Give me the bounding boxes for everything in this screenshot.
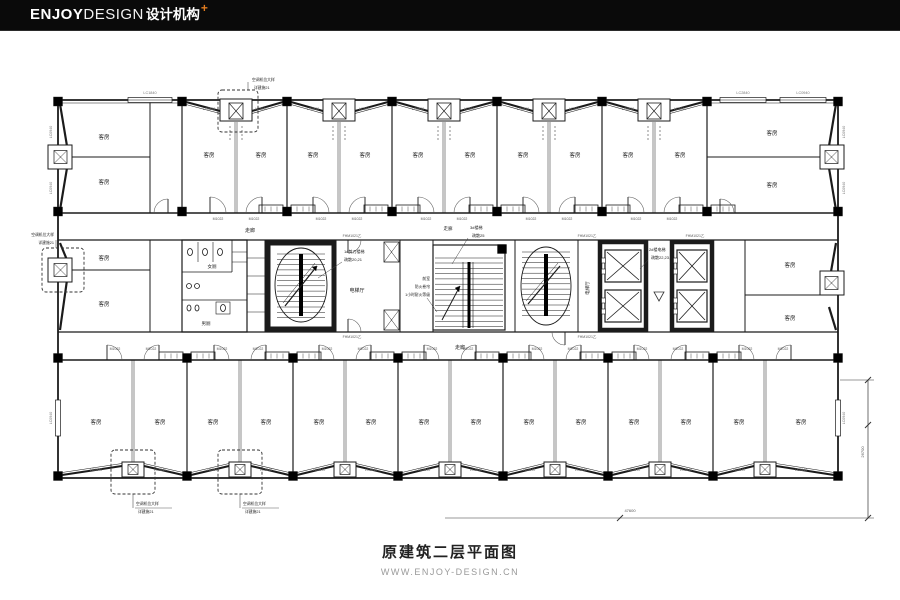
column — [499, 354, 508, 363]
door-code: M1022 — [637, 347, 648, 351]
note: 1小时耐火等级 — [405, 292, 430, 297]
column — [388, 207, 397, 216]
window-code: LC2840 — [365, 468, 378, 472]
stair-arrow — [442, 286, 460, 320]
window-code: LC2840 — [622, 107, 635, 111]
fixture-ellipse — [187, 284, 192, 289]
room-label: 客房 — [313, 418, 325, 426]
window — [56, 400, 61, 436]
elevator-door-jamb — [602, 258, 606, 263]
window-code: LC2840 — [307, 107, 320, 111]
fixture-ellipse — [218, 249, 223, 256]
elevator-door-jamb — [602, 269, 606, 274]
column — [834, 472, 843, 481]
wall-line — [829, 168, 836, 210]
window-code: LC2840 — [470, 468, 483, 472]
fixture-ellipse — [195, 284, 200, 289]
window-code: LC2840 — [523, 468, 536, 472]
room-label: 客房 — [203, 151, 215, 159]
column — [54, 472, 63, 481]
column — [709, 354, 718, 363]
stair-note: 疏散25 — [472, 232, 485, 238]
elevator-door-jamb — [674, 269, 678, 274]
window-code: LC0940 — [842, 412, 846, 425]
window-code: LC2840 — [412, 107, 425, 111]
room-label: 客房 — [795, 418, 807, 426]
door-swing — [720, 199, 734, 213]
column — [54, 207, 63, 216]
elevator-door-jamb — [602, 309, 606, 314]
door-code: M1022 — [146, 347, 157, 351]
door-code: M1022 — [322, 347, 333, 351]
wall-line — [60, 280, 67, 330]
room-label: 女厕 — [208, 263, 217, 270]
room-label: 客房 — [98, 300, 110, 308]
corridor-label: 走廊 — [444, 225, 453, 232]
column — [394, 354, 403, 363]
stair-note: 疏散20,21 — [344, 256, 363, 262]
fire-door-code: FHM1021乙 — [343, 233, 362, 238]
elevator-door-jamb — [674, 298, 678, 303]
door-swing — [664, 197, 680, 213]
door-code: M1022 — [217, 347, 228, 351]
drawing-sheet: ENJOYDESIGN设计机构+ LC1840LC2840LC0940LC094… — [0, 0, 900, 600]
column — [493, 97, 502, 106]
door-code: M1022 — [562, 217, 573, 221]
door-swing — [523, 197, 539, 213]
column — [709, 472, 718, 481]
wall-line — [526, 263, 558, 301]
door-code: M1022 — [110, 347, 121, 351]
door-code: M1022 — [427, 347, 438, 351]
ac-note: 空调机位大样 — [252, 77, 275, 82]
window-code: LC2840 — [628, 468, 641, 472]
window-code: LC2840 — [736, 91, 749, 95]
room-label: 客房 — [569, 151, 581, 159]
ac-niche — [323, 99, 355, 121]
door-code: M1022 — [532, 347, 543, 351]
door-swing — [210, 197, 226, 213]
ac-niche — [820, 145, 844, 169]
ac-note: 空调机位大样 — [31, 232, 54, 237]
room-label: 客房 — [418, 418, 430, 426]
ac-note: 空调机位大样 — [243, 501, 266, 506]
room-label: 电梯厅 — [349, 287, 364, 294]
window-code: LC2840 — [569, 107, 582, 111]
column — [493, 207, 502, 216]
room-label: 客房 — [98, 254, 110, 262]
fire-door-code: FHM1021乙 — [578, 334, 597, 339]
ac-niche — [220, 99, 252, 121]
column — [703, 97, 712, 106]
door-code: M1022 — [673, 347, 684, 351]
room-label: 客房 — [207, 418, 219, 426]
column — [834, 354, 843, 363]
room-label: 客房 — [784, 261, 796, 269]
fire-door-code: FHM1021乙 — [578, 233, 597, 238]
column — [834, 97, 843, 106]
column — [283, 97, 292, 106]
window-code: LC0940 — [49, 126, 53, 139]
room-label: 客房 — [98, 133, 110, 141]
ac-niche — [820, 271, 844, 295]
door-code: M1022 — [742, 347, 753, 351]
fixture-ellipse — [195, 305, 199, 311]
window-code: LC2840 — [733, 468, 746, 472]
elevator-door-jamb — [674, 258, 678, 263]
column — [598, 207, 607, 216]
window-code: LC1840 — [143, 91, 156, 95]
door-code: M1022 — [358, 347, 369, 351]
shaft-strip — [247, 240, 265, 332]
room-label: 客房 — [365, 418, 377, 426]
fire-door-code: FHM1021乙 — [686, 233, 705, 238]
column — [283, 207, 292, 216]
dim-text: 47600 — [624, 508, 636, 513]
stair-note: 1#剪刀楼梯 — [344, 248, 364, 254]
door-code: M1022 — [316, 217, 327, 221]
door-code: M1022 — [667, 217, 678, 221]
wall-line — [60, 243, 67, 260]
room-label: 电梯厅 — [584, 281, 591, 295]
window-code: LC0940 — [842, 182, 846, 195]
room-label: 客房 — [307, 151, 319, 159]
window-code: LC0940 — [842, 126, 846, 139]
column — [178, 97, 187, 106]
door-code: M1022 — [568, 347, 579, 351]
room-label: 客房 — [628, 418, 640, 426]
door-code: M1022 — [778, 347, 789, 351]
elevator-door-jamb — [602, 298, 606, 303]
room-label: 客房 — [784, 314, 796, 322]
window-code: LC2840 — [674, 107, 687, 111]
fixture-ellipse — [221, 305, 226, 312]
window-code: LC2840 — [517, 107, 530, 111]
window-code: LC0940 — [49, 182, 53, 195]
column — [289, 472, 298, 481]
window-code: LC2840 — [680, 468, 693, 472]
door-code: M1022 — [253, 347, 264, 351]
ac-note: 详建施21 — [38, 240, 54, 245]
door-code: M1022 — [631, 217, 642, 221]
stair-note: 3#楼梯 — [470, 224, 482, 230]
room-label: 客房 — [766, 181, 778, 189]
drawing-title: 原建筑二层平面图 — [0, 541, 900, 562]
door-code: M1022 — [457, 217, 468, 221]
column — [598, 97, 607, 106]
floor-plan-canvas: LC1840LC2840LC0940LC0940LC0940LC0940LC09… — [0, 0, 900, 600]
room-label: 客房 — [517, 151, 529, 159]
column — [834, 207, 843, 216]
fire-door-code: FHM1021乙 — [343, 334, 362, 339]
room-label: 客房 — [523, 418, 535, 426]
column — [289, 354, 298, 363]
room-label: 客房 — [680, 418, 692, 426]
wall-line — [829, 307, 836, 330]
note: 防火卷帘 — [415, 284, 430, 289]
column — [604, 472, 613, 481]
column — [499, 472, 508, 481]
corridor-label: 走廊 — [455, 344, 465, 351]
door-swing — [454, 197, 470, 213]
fixture-ellipse — [203, 249, 208, 256]
ac-note: 详建施21 — [138, 509, 154, 514]
room-label: 客房 — [412, 151, 424, 159]
door-code: M1022 — [249, 217, 260, 221]
ac-niche — [48, 145, 72, 169]
column — [388, 97, 397, 106]
wall-line — [60, 104, 67, 146]
room-label: 客房 — [90, 418, 102, 426]
window-code: LC2840 — [255, 107, 268, 111]
window-code: LC2840 — [795, 468, 808, 472]
room-label: 客房 — [470, 418, 482, 426]
column — [604, 354, 613, 363]
column — [183, 354, 192, 363]
column — [703, 207, 712, 216]
wall-line — [829, 104, 836, 146]
arrow-head — [312, 266, 317, 271]
elevator-door-jamb — [674, 309, 678, 314]
level-marker — [654, 292, 664, 301]
door-code: M1022 — [421, 217, 432, 221]
ac-niche — [48, 258, 72, 282]
stair-divider — [468, 262, 471, 328]
column — [178, 207, 187, 216]
door-swing — [349, 197, 365, 213]
door-code: M1022 — [352, 217, 363, 221]
window-code: LC0940 — [796, 91, 809, 95]
ac-niche — [638, 99, 670, 121]
plan-shape — [216, 302, 230, 314]
note: 前室 — [422, 276, 430, 281]
elevator-bank — [672, 242, 712, 330]
window-code: LC2840 — [90, 468, 103, 472]
corridor-label: 走廊 — [245, 227, 255, 234]
window-code: LC2840 — [203, 107, 216, 111]
room-label: 客房 — [154, 418, 166, 426]
room-label: 客房 — [766, 129, 778, 137]
column — [498, 245, 507, 254]
room-label: 客房 — [98, 178, 110, 186]
door-swing — [559, 197, 575, 213]
website-url: WWW.ENJOY-DESIGN.CN — [0, 567, 900, 577]
door-swing — [552, 332, 565, 345]
room-label: 客房 — [260, 418, 272, 426]
door-swing — [348, 319, 361, 332]
fixture-ellipse — [187, 305, 191, 311]
column — [54, 354, 63, 363]
window-code: LC0940 — [49, 412, 53, 425]
drawing-caption: 原建筑二层平面图 WWW.ENJOY-DESIGN.CN — [0, 541, 900, 577]
ac-note: 详建施21 — [245, 509, 261, 514]
window-code: LC2840 — [418, 468, 431, 472]
window-code: LC2840 — [464, 107, 477, 111]
ac-niche — [428, 99, 460, 121]
column — [54, 97, 63, 106]
column — [183, 472, 192, 481]
leader — [452, 238, 468, 264]
door-code: M1022 — [213, 217, 224, 221]
elev-note: 2#楼电梯 — [649, 246, 665, 252]
window-code: LC2840 — [359, 107, 372, 111]
column — [394, 472, 403, 481]
ac-note: 空调机位大样 — [136, 501, 159, 506]
room-label: 客房 — [464, 151, 476, 159]
window-code: LC2840 — [575, 468, 588, 472]
room-label: 客房 — [255, 151, 267, 159]
fixture-ellipse — [188, 249, 193, 256]
window-code: LC2840 — [207, 468, 220, 472]
wall-line — [60, 168, 67, 210]
room-label: 客房 — [575, 418, 587, 426]
door-swing — [154, 199, 168, 213]
window-code: LC2840 — [154, 468, 167, 472]
room-label: 男厕 — [202, 321, 211, 327]
ac-note: 详建施21 — [254, 85, 270, 90]
door-swing — [628, 197, 644, 213]
room-label: 客房 — [359, 151, 371, 159]
elevator-bank — [600, 242, 646, 330]
room-label: 客房 — [622, 151, 634, 159]
room-label: 客房 — [733, 418, 745, 426]
door-code: M1022 — [526, 217, 537, 221]
dim-text: 26700 — [860, 446, 865, 458]
window-code: LC2840 — [313, 468, 326, 472]
ac-niche — [533, 99, 565, 121]
window — [836, 400, 841, 436]
room-label: 客房 — [674, 151, 686, 159]
